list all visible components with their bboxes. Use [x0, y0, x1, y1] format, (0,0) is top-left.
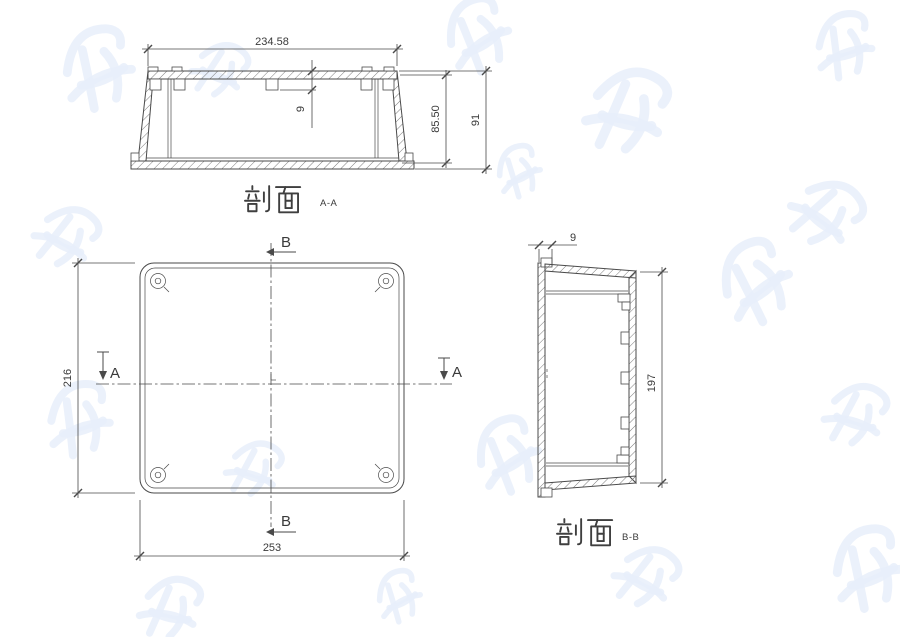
section-aa-title-suffix: A-A	[320, 198, 338, 209]
section-aa-geometry	[131, 67, 414, 169]
section-bb-geometry	[538, 258, 636, 497]
plan-center-mark	[271, 374, 276, 380]
bb-dim-inner-length: 197	[640, 267, 668, 488]
plan-marker-a-right-text: A	[452, 364, 462, 381]
bb-dim-lid-thickness-text: 9	[570, 232, 576, 244]
plan-marker-a-left-text: A	[110, 365, 120, 382]
aa-dim-inner-height-text: 85.50	[430, 105, 442, 133]
plan-inner-outline	[145, 268, 399, 488]
aa-dim-width: 234.58	[142, 36, 403, 66]
plan-section-marker-b-bottom: B	[266, 513, 296, 536]
section-bb-title-chinese	[557, 519, 612, 545]
section-bb-view: 9 197 B-B	[528, 232, 668, 545]
plan-dim-height: 216	[62, 258, 135, 498]
bb-bottom-wall	[545, 476, 636, 490]
aa-top-band	[148, 71, 397, 79]
plan-corner-screw-holes	[151, 274, 394, 483]
aa-top-lugs	[148, 67, 394, 71]
plan-marker-b-bottom-text: B	[281, 513, 291, 530]
bb-interior-bottom	[546, 447, 629, 466]
plan-section-marker-b-top: B	[266, 234, 296, 256]
bb-dim-inner-length-text: 197	[646, 374, 658, 392]
bb-lid-wall	[538, 263, 545, 497]
bb-dim-lid-thickness: 9	[528, 232, 577, 266]
aa-dim-width-text: 234.58	[255, 36, 289, 48]
bb-bottom-lip	[541, 488, 552, 497]
bb-interior-top	[546, 291, 630, 310]
engineering-drawing-sheet: 234.58 9 85.50 91	[0, 0, 900, 637]
aa-bottom-right-lip	[405, 153, 413, 161]
plan-dim-width-text: 253	[263, 542, 281, 554]
plan-marker-b-top-text: B	[281, 234, 291, 251]
plan-dim-height-text: 216	[62, 369, 74, 387]
section-bb-title-suffix: B-B	[622, 532, 639, 543]
aa-dim-outer-height-text: 91	[470, 114, 482, 126]
section-aa-title-chinese	[245, 186, 300, 212]
plan-section-marker-a-right: A	[438, 358, 462, 381]
watermark-pattern	[27, 0, 900, 637]
aa-dim-boss-depth-text: 9	[295, 106, 307, 112]
section-aa-title: A-A	[245, 186, 338, 212]
aa-bottom-left-lip	[131, 153, 139, 161]
section-bb-title: B-B	[557, 519, 639, 545]
plan-outer-outline	[140, 263, 404, 493]
plan-view: A A B B 216	[62, 234, 462, 561]
section-aa-view: 234.58 9 85.50 91	[131, 36, 492, 212]
aa-bottom-band	[131, 161, 414, 169]
aa-dim-boss-depth: 9	[280, 60, 316, 128]
aa-screw-bosses	[150, 79, 394, 90]
bb-top-wall	[545, 264, 636, 278]
plan-section-marker-a-left: A	[97, 352, 120, 382]
drawing-svg: 234.58 9 85.50 91	[0, 0, 900, 637]
bb-side-bosses	[621, 332, 629, 429]
